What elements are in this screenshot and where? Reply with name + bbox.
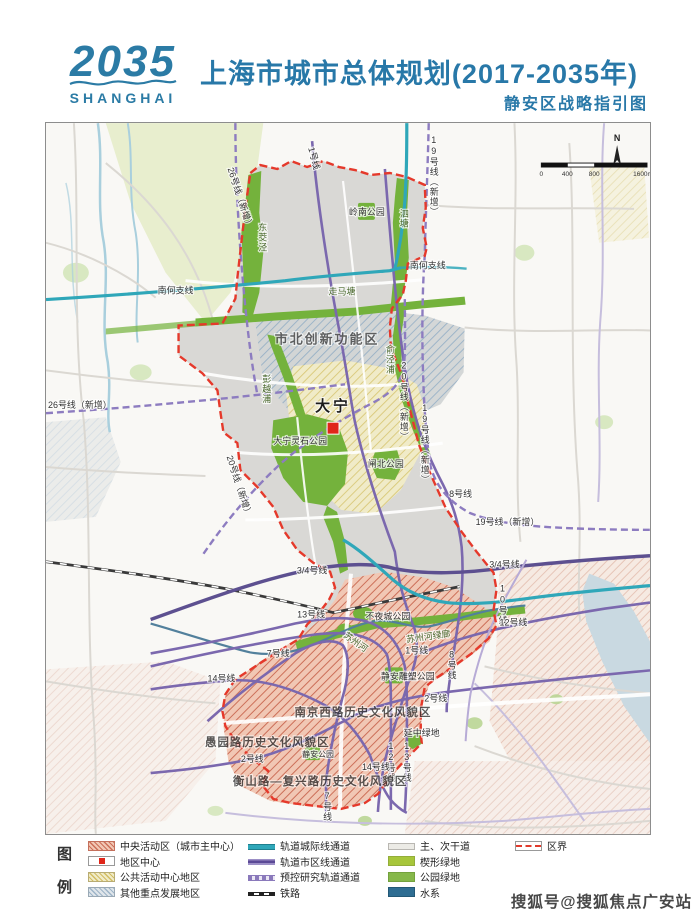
legend-label: 公共活动中心地区 (120, 869, 200, 884)
map-label: 13号线 (297, 609, 325, 620)
map-canvas: N 0 400 800 1600m 26号线（新增）1号线19号线（新增）泗塘东… (46, 123, 650, 834)
map-label: 7号线 (267, 647, 290, 658)
road-swatch (388, 843, 415, 850)
map-label: 8号线 (447, 649, 457, 680)
map-label: 19号线（新增） (420, 403, 430, 485)
legend-label: 其他重点发展地区 (120, 885, 200, 900)
map-label: 静安雕塑公园 (381, 670, 435, 681)
map-label: 26号线（新增） (48, 399, 112, 410)
map-label: 俞泾浦 (385, 343, 395, 374)
legend-label: 中央活动区（城市主中心） (120, 838, 240, 853)
legend-item: 中央活动区（城市主中心） (88, 840, 240, 851)
legend-item: 铁路 (248, 887, 360, 898)
legend-column-lines: 轨道城际线通道 轨道市区线通道 预控研究轨道通道 铁路 (248, 840, 360, 898)
map-label: 2号线 (241, 753, 264, 764)
legend-label: 轨道市区线通道 (280, 854, 350, 869)
map-label: 愚园路历史文化风貌区 (205, 735, 330, 749)
district-center-swatch (88, 856, 115, 866)
map-label: 2号线 (424, 692, 447, 703)
legend-label: 区界 (547, 838, 567, 853)
page: { "header": { "logo_year": "2035", "logo… (0, 0, 695, 918)
urban-metro-swatch (248, 859, 275, 865)
wedge-green-swatch (388, 856, 415, 866)
page-title: 上海市城市总体规划(2017-2035年) (190, 52, 648, 91)
map-label: 14号线 (362, 761, 390, 772)
legend-column-areas: 中央活动区（城市主中心） 地区中心 公共活动中心地区 其他重点发展地区 (88, 840, 240, 898)
map-label: 南何支线 (158, 285, 194, 296)
legend-column-boundary: 区界 (515, 840, 567, 851)
legend-label: 预控研究轨道通道 (280, 869, 360, 884)
planned-rail-swatch (248, 875, 275, 881)
railway-swatch (248, 892, 275, 896)
legend-title-char: 图 (57, 843, 72, 864)
logo-city: SHANGHAI (58, 90, 188, 106)
legend-item: 地区中心 (88, 856, 240, 867)
map-label: 12号线 (499, 617, 527, 628)
north-label: N (614, 133, 620, 143)
key-development-swatch (88, 887, 115, 897)
map-label: 走马塘 (329, 286, 356, 297)
legend-label: 主、次干道 (420, 838, 470, 853)
legend-label: 楔形绿地 (420, 854, 460, 869)
legend-item: 公园绿地 (388, 871, 470, 882)
map-label: 衡山路—复兴路历史文化风貌区 (233, 774, 407, 788)
legend-item: 水系 (388, 887, 470, 898)
map-label: 不夜城公园 (365, 611, 410, 622)
map-label: 大宁灵石公园 (273, 435, 327, 446)
legend-label: 地区中心 (120, 854, 160, 869)
legend-column-fills: 主、次干道 楔形绿地 公园绿地 水系 (388, 840, 470, 898)
scale-tick: 800 (589, 171, 600, 178)
legend-item: 区界 (515, 840, 567, 851)
district-center-marker (327, 422, 339, 434)
map-label: 彭越浦 (261, 373, 271, 404)
map-label: 19号线（新增） (429, 135, 439, 217)
map-label: 东茭泾 (257, 222, 267, 253)
legend-item: 公共活动中心地区 (88, 871, 240, 882)
public-activity-swatch (88, 872, 115, 882)
logo-year: 2035 (58, 40, 188, 84)
map-label: 8号线 (449, 488, 472, 499)
legend-item: 楔形绿地 (388, 856, 470, 867)
map-label: 14号线 (207, 672, 235, 683)
map-label: 1号线 (405, 644, 428, 655)
scale-tick: 1600m (633, 171, 650, 178)
legend-item: 其他重点发展地区 (88, 887, 240, 898)
map-label: 市北创新功能区 (275, 331, 380, 346)
legend-label: 水系 (420, 885, 440, 900)
legend-label: 轨道城际线通道 (280, 838, 350, 853)
water-swatch (388, 887, 415, 897)
legend-label: 公园绿地 (420, 869, 460, 884)
scale-tick: 400 (562, 171, 573, 178)
map-label: 南京西路历史文化风貌区 (294, 705, 431, 719)
shanghai-2035-logo: 2035 SHANGHAI (58, 40, 188, 106)
scale-tick: 0 (540, 171, 544, 178)
map-label: 岭南公园 (349, 206, 385, 217)
intercity-rail-swatch (248, 844, 275, 850)
map-label: 南何支线 (410, 260, 446, 271)
watermark: 搜狐号@搜狐焦点广安站 (511, 890, 692, 912)
legend-item: 轨道城际线通道 (248, 840, 360, 851)
legend-label: 铁路 (280, 885, 300, 900)
legend-item: 预控研究轨道通道 (248, 871, 360, 882)
map-label: 泗塘 (399, 209, 409, 229)
page-subtitle: 静安区战略指引图 (300, 90, 648, 114)
caz-swatch (88, 841, 115, 851)
map-label: 20号线（新增） (399, 360, 409, 442)
legend-title-char: 例 (57, 876, 72, 897)
park-green-swatch (388, 872, 415, 882)
legend-item: 轨道市区线通道 (248, 856, 360, 867)
legend-item: 主、次干道 (388, 840, 470, 851)
map-label: 闸北公园 (368, 459, 404, 469)
map-label: 延中绿地 (404, 727, 440, 738)
map-label: 大宁 (315, 397, 351, 415)
planning-map: N 0 400 800 1600m 26号线（新增）1号线19号线（新增）泗塘东… (45, 122, 651, 835)
map-label: 19号线（新增） (476, 516, 540, 527)
map-label: 7号线 (322, 791, 332, 822)
map-label: 3/4号线 (489, 559, 519, 570)
map-label: 静安公园 (302, 749, 334, 759)
map-label: 3/4号线 (297, 565, 327, 576)
district-border-swatch (515, 841, 542, 851)
